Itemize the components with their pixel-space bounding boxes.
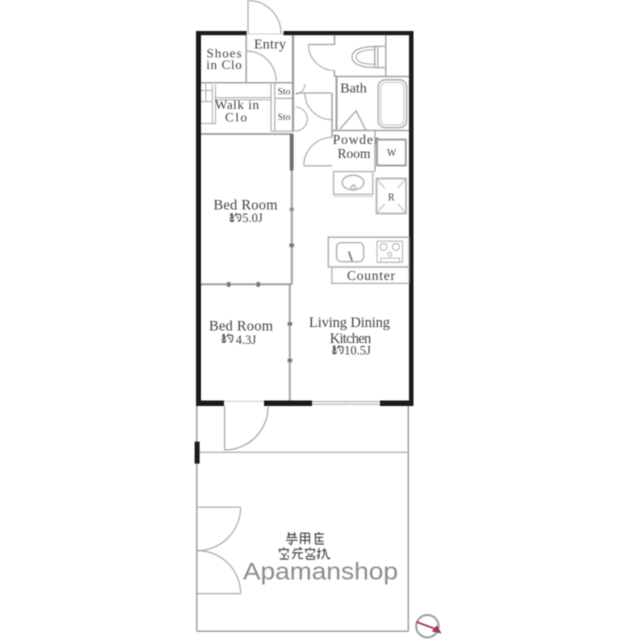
svg-text:Sto: Sto (278, 113, 291, 123)
svg-text:10.5J: 10.5J (344, 344, 371, 358)
svg-text:5.0J: 5.0J (242, 211, 263, 225)
svg-text:Powder: Powder (333, 132, 379, 147)
svg-text:in Clo: in Clo (206, 57, 242, 72)
svg-text:W: W (387, 148, 397, 159)
svg-text:Bath: Bath (340, 82, 366, 97)
svg-text:Clo: Clo (225, 110, 247, 125)
svg-text:Entry: Entry (254, 38, 286, 53)
svg-text:Sto: Sto (278, 88, 291, 98)
svg-text:Living Dining: Living Dining (309, 315, 390, 331)
svg-text:Apamanshop: Apamanshop (243, 559, 398, 586)
svg-text:Counter: Counter (347, 268, 396, 283)
svg-text:4.3J: 4.3J (236, 333, 257, 347)
svg-text:Room: Room (337, 146, 371, 161)
svg-text:R: R (388, 192, 395, 203)
